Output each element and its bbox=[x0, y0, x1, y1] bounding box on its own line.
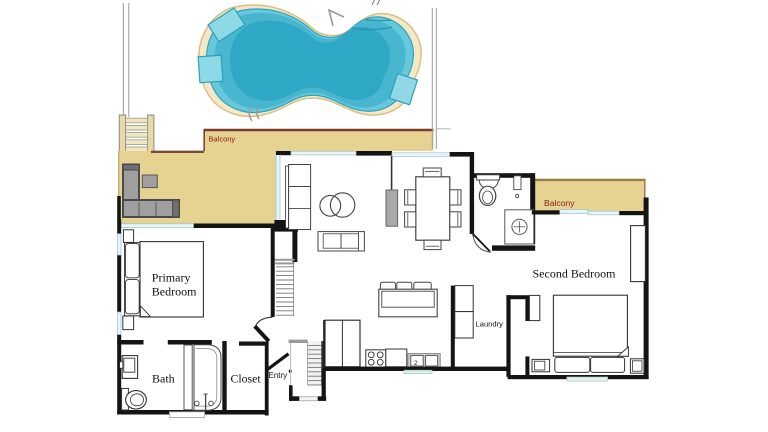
svg-text:Balcony: Balcony bbox=[544, 198, 575, 208]
svg-text:Bath: Bath bbox=[152, 372, 175, 386]
svg-text:Primary: Primary bbox=[152, 270, 191, 284]
svg-text:Balcony: Balcony bbox=[209, 135, 236, 144]
svg-text:Laundry: Laundry bbox=[476, 320, 504, 329]
svg-text:Second Bedroom: Second Bedroom bbox=[533, 267, 617, 281]
svg-text:Bedroom: Bedroom bbox=[152, 285, 197, 299]
svg-text:Closet: Closet bbox=[231, 372, 262, 386]
svg-text:Entry: Entry bbox=[269, 371, 288, 380]
